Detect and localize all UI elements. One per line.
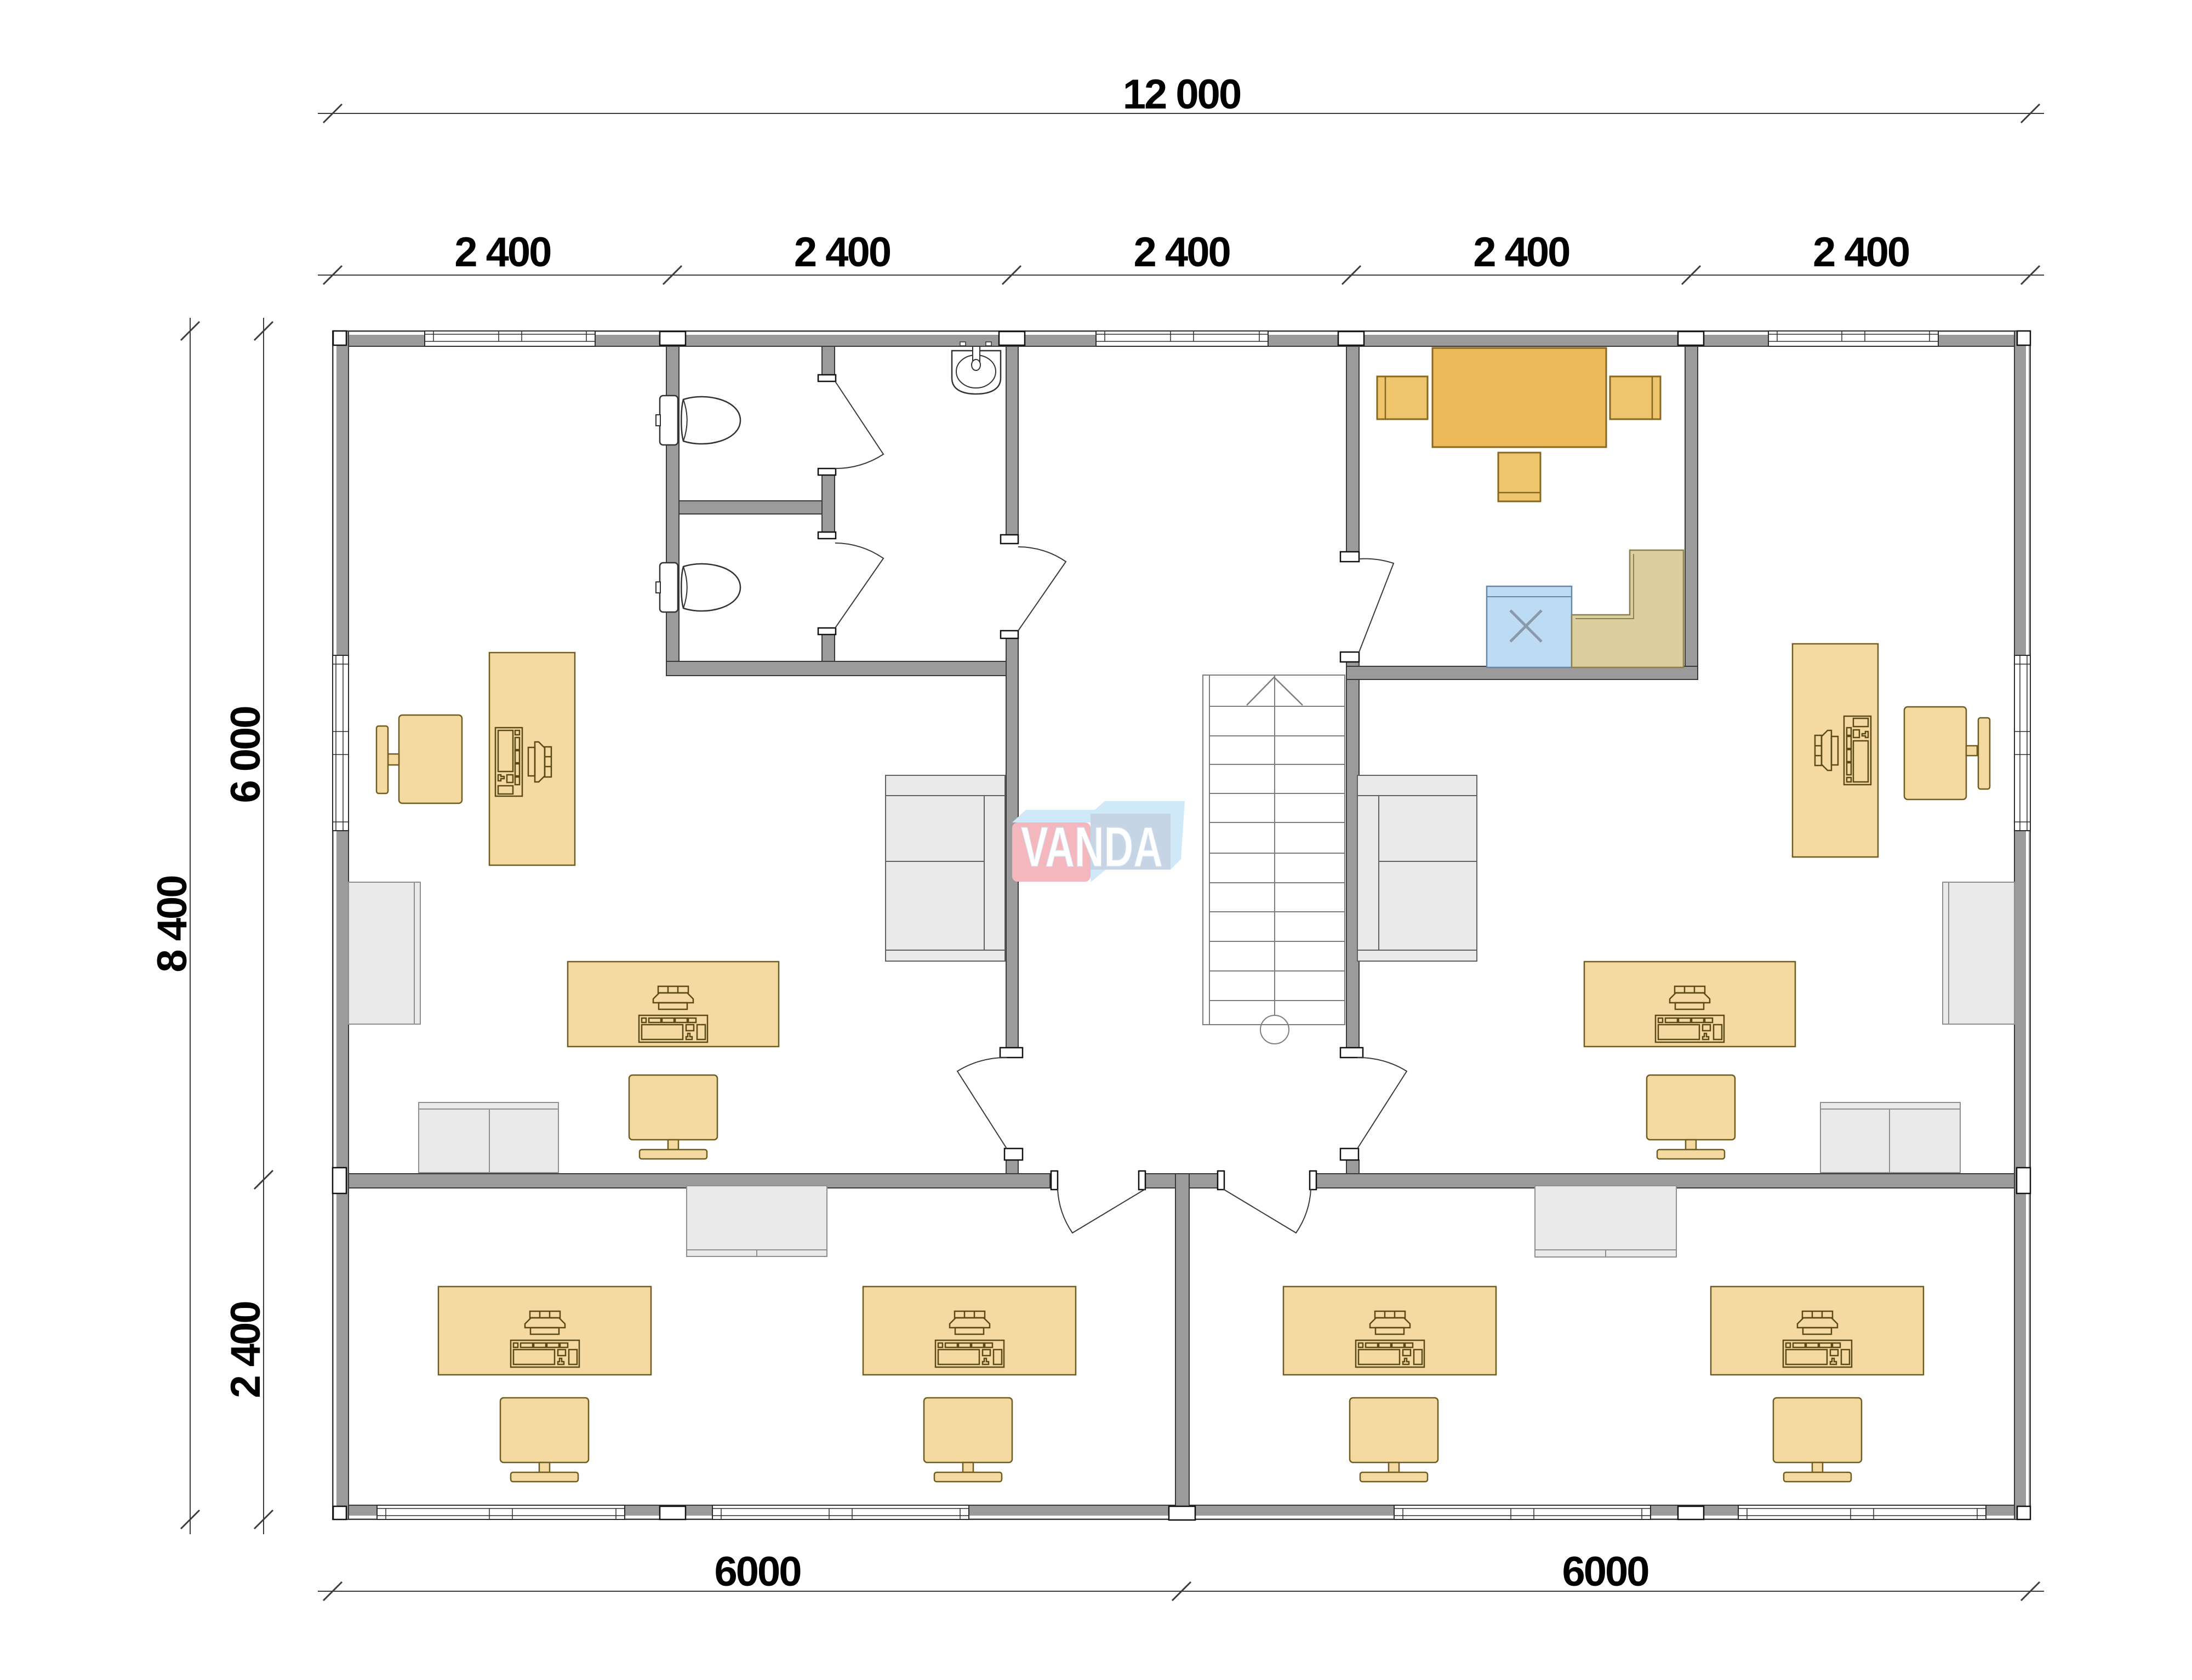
- svg-text:VANDA: VANDA: [1021, 815, 1163, 878]
- svg-text:2 400: 2 400: [1813, 229, 1909, 276]
- svg-text:6 000: 6 000: [222, 707, 269, 803]
- svg-text:2 400: 2 400: [794, 229, 891, 276]
- svg-text:6000: 6000: [714, 1548, 801, 1595]
- svg-text:8 400: 8 400: [149, 876, 196, 973]
- svg-text:2 400: 2 400: [1134, 229, 1230, 276]
- svg-text:2 400: 2 400: [1473, 229, 1569, 276]
- svg-text:12 000: 12 000: [1123, 71, 1241, 118]
- svg-text:6000: 6000: [1562, 1548, 1648, 1595]
- svg-text:2 400: 2 400: [222, 1302, 269, 1398]
- svg-text:2 400: 2 400: [454, 229, 551, 276]
